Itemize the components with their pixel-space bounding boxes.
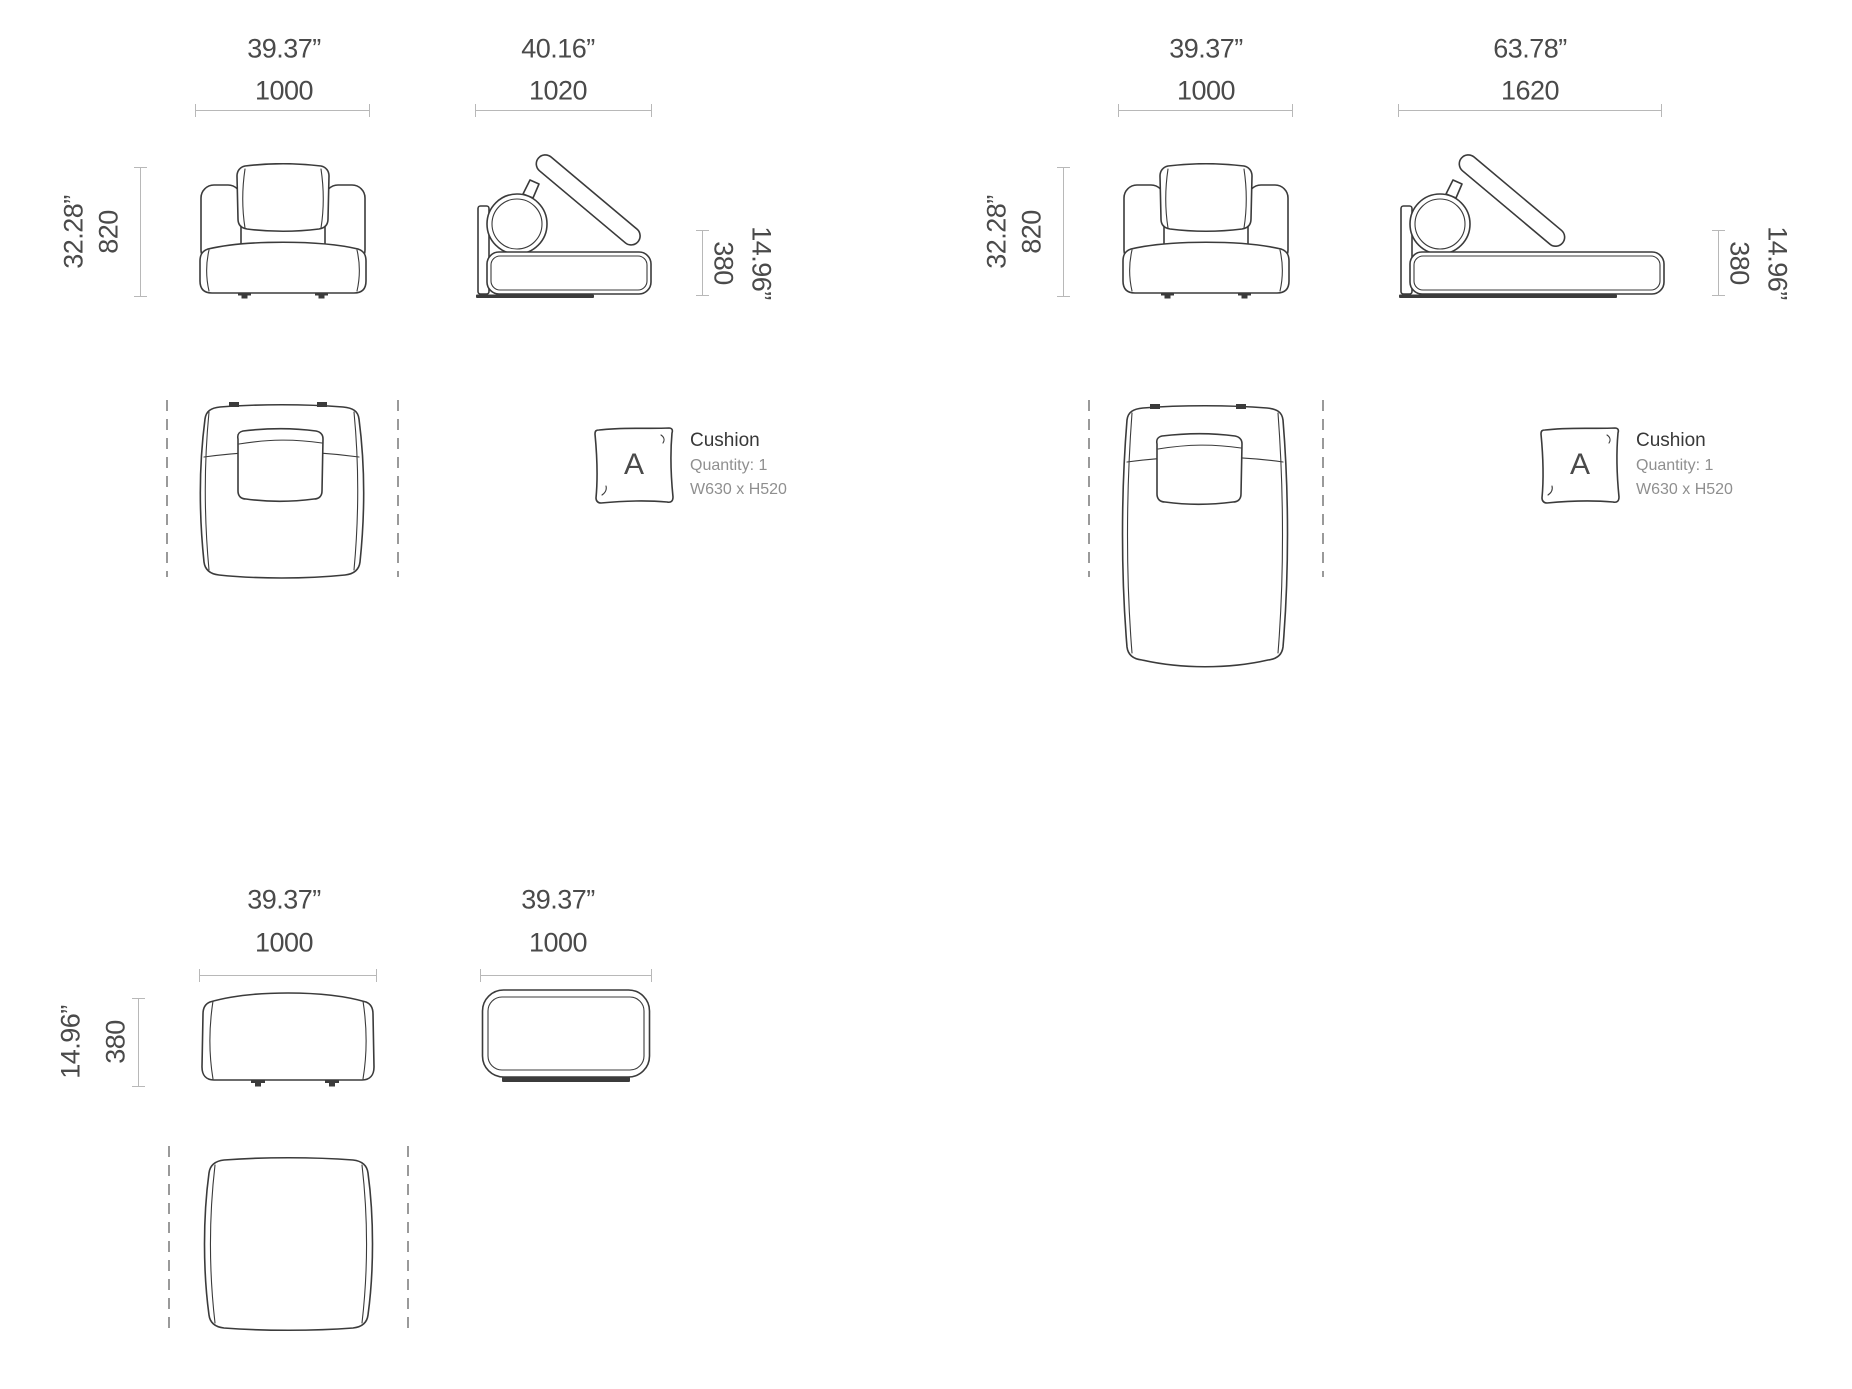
module-height-dim-line (140, 167, 141, 297)
chaise-seat-height-mm: 380 (1724, 241, 1755, 285)
chaise-side-view-drawing (1396, 148, 1668, 300)
ottoman-height-dim-line (138, 998, 139, 1087)
module-side-view-drawing (473, 148, 653, 300)
ottoman-front-width-inches: 39.37” (247, 885, 321, 916)
module-front-width-dim-line (195, 110, 370, 111)
module-depth-mm: 1020 (529, 76, 587, 107)
ottoman-height-mm: 380 (101, 1020, 132, 1064)
module-depth-inches: 40.16” (521, 34, 595, 65)
module-cushion-quantity: Quantity: 1 (690, 457, 767, 475)
module-height-inches: 32.28” (59, 195, 90, 269)
chaise-front-width-mm: 1000 (1177, 76, 1235, 107)
module-cushion-size: W630 x H520 (690, 481, 787, 499)
module-front-view-drawing (198, 163, 368, 299)
ottoman-front-width-mm: 1000 (255, 928, 313, 959)
ottoman-height-inches: 14.96” (56, 1005, 87, 1079)
chaise-front-width-inches: 39.37” (1169, 34, 1243, 65)
ottoman-front-view-drawing (199, 987, 377, 1089)
chaise-plan-guide-right (1322, 400, 1324, 577)
ottoman-depth-mm: 1000 (529, 928, 587, 959)
chaise-height-dim-line (1063, 167, 1064, 297)
module-depth-dim-line (475, 110, 652, 111)
ottoman-plan-guide-left (168, 1146, 170, 1334)
chaise-depth-mm: 1620 (1501, 76, 1559, 107)
ottoman-top-view-drawing (197, 1155, 380, 1333)
module-plan-guide-left (166, 400, 168, 577)
chaise-seat-height-dim-line (1718, 230, 1719, 296)
chaise-depth-inches: 63.78” (1493, 34, 1567, 65)
module-seat-height-mm: 380 (708, 241, 739, 285)
module-front-width-inches: 39.37” (247, 34, 321, 65)
ottoman-front-width-dim-line (199, 975, 377, 976)
chaise-cushion-quantity: Quantity: 1 (1636, 457, 1713, 475)
module-front-width-mm: 1000 (255, 76, 313, 107)
module-cushion-title: Cushion (690, 430, 760, 452)
module-seat-height-inches: 14.96” (746, 226, 777, 300)
chaise-cushion-title: Cushion (1636, 430, 1706, 452)
module-height-mm: 820 (94, 210, 125, 254)
chaise-seat-height-inches: 14.96” (1762, 226, 1793, 300)
chaise-front-width-dim-line (1118, 110, 1293, 111)
ottoman-depth-inches: 39.37” (521, 885, 595, 916)
ottoman-side-view-drawing (480, 987, 652, 1089)
ottoman-depth-dim-line (480, 975, 652, 976)
furniture-dimension-sheet: 39.37” 1000 40.16” 1020 32.28” 820 380 1… (0, 0, 1852, 1389)
chaise-front-view-drawing (1121, 163, 1291, 299)
module-seat-height-dim-line (702, 230, 703, 296)
chaise-height-inches: 32.28” (982, 195, 1013, 269)
module-plan-guide-right (397, 400, 399, 577)
chaise-height-mm: 820 (1017, 210, 1048, 254)
chaise-plan-guide-left (1088, 400, 1090, 577)
chaise-depth-dim-line (1398, 110, 1662, 111)
module-top-view-drawing (195, 402, 368, 580)
chaise-cushion-size: W630 x H520 (1636, 481, 1733, 499)
ottoman-plan-guide-right (407, 1146, 409, 1334)
module-cushion-letter: A (624, 448, 644, 482)
chaise-top-view-drawing (1117, 403, 1293, 670)
chaise-cushion-letter: A (1570, 448, 1590, 482)
